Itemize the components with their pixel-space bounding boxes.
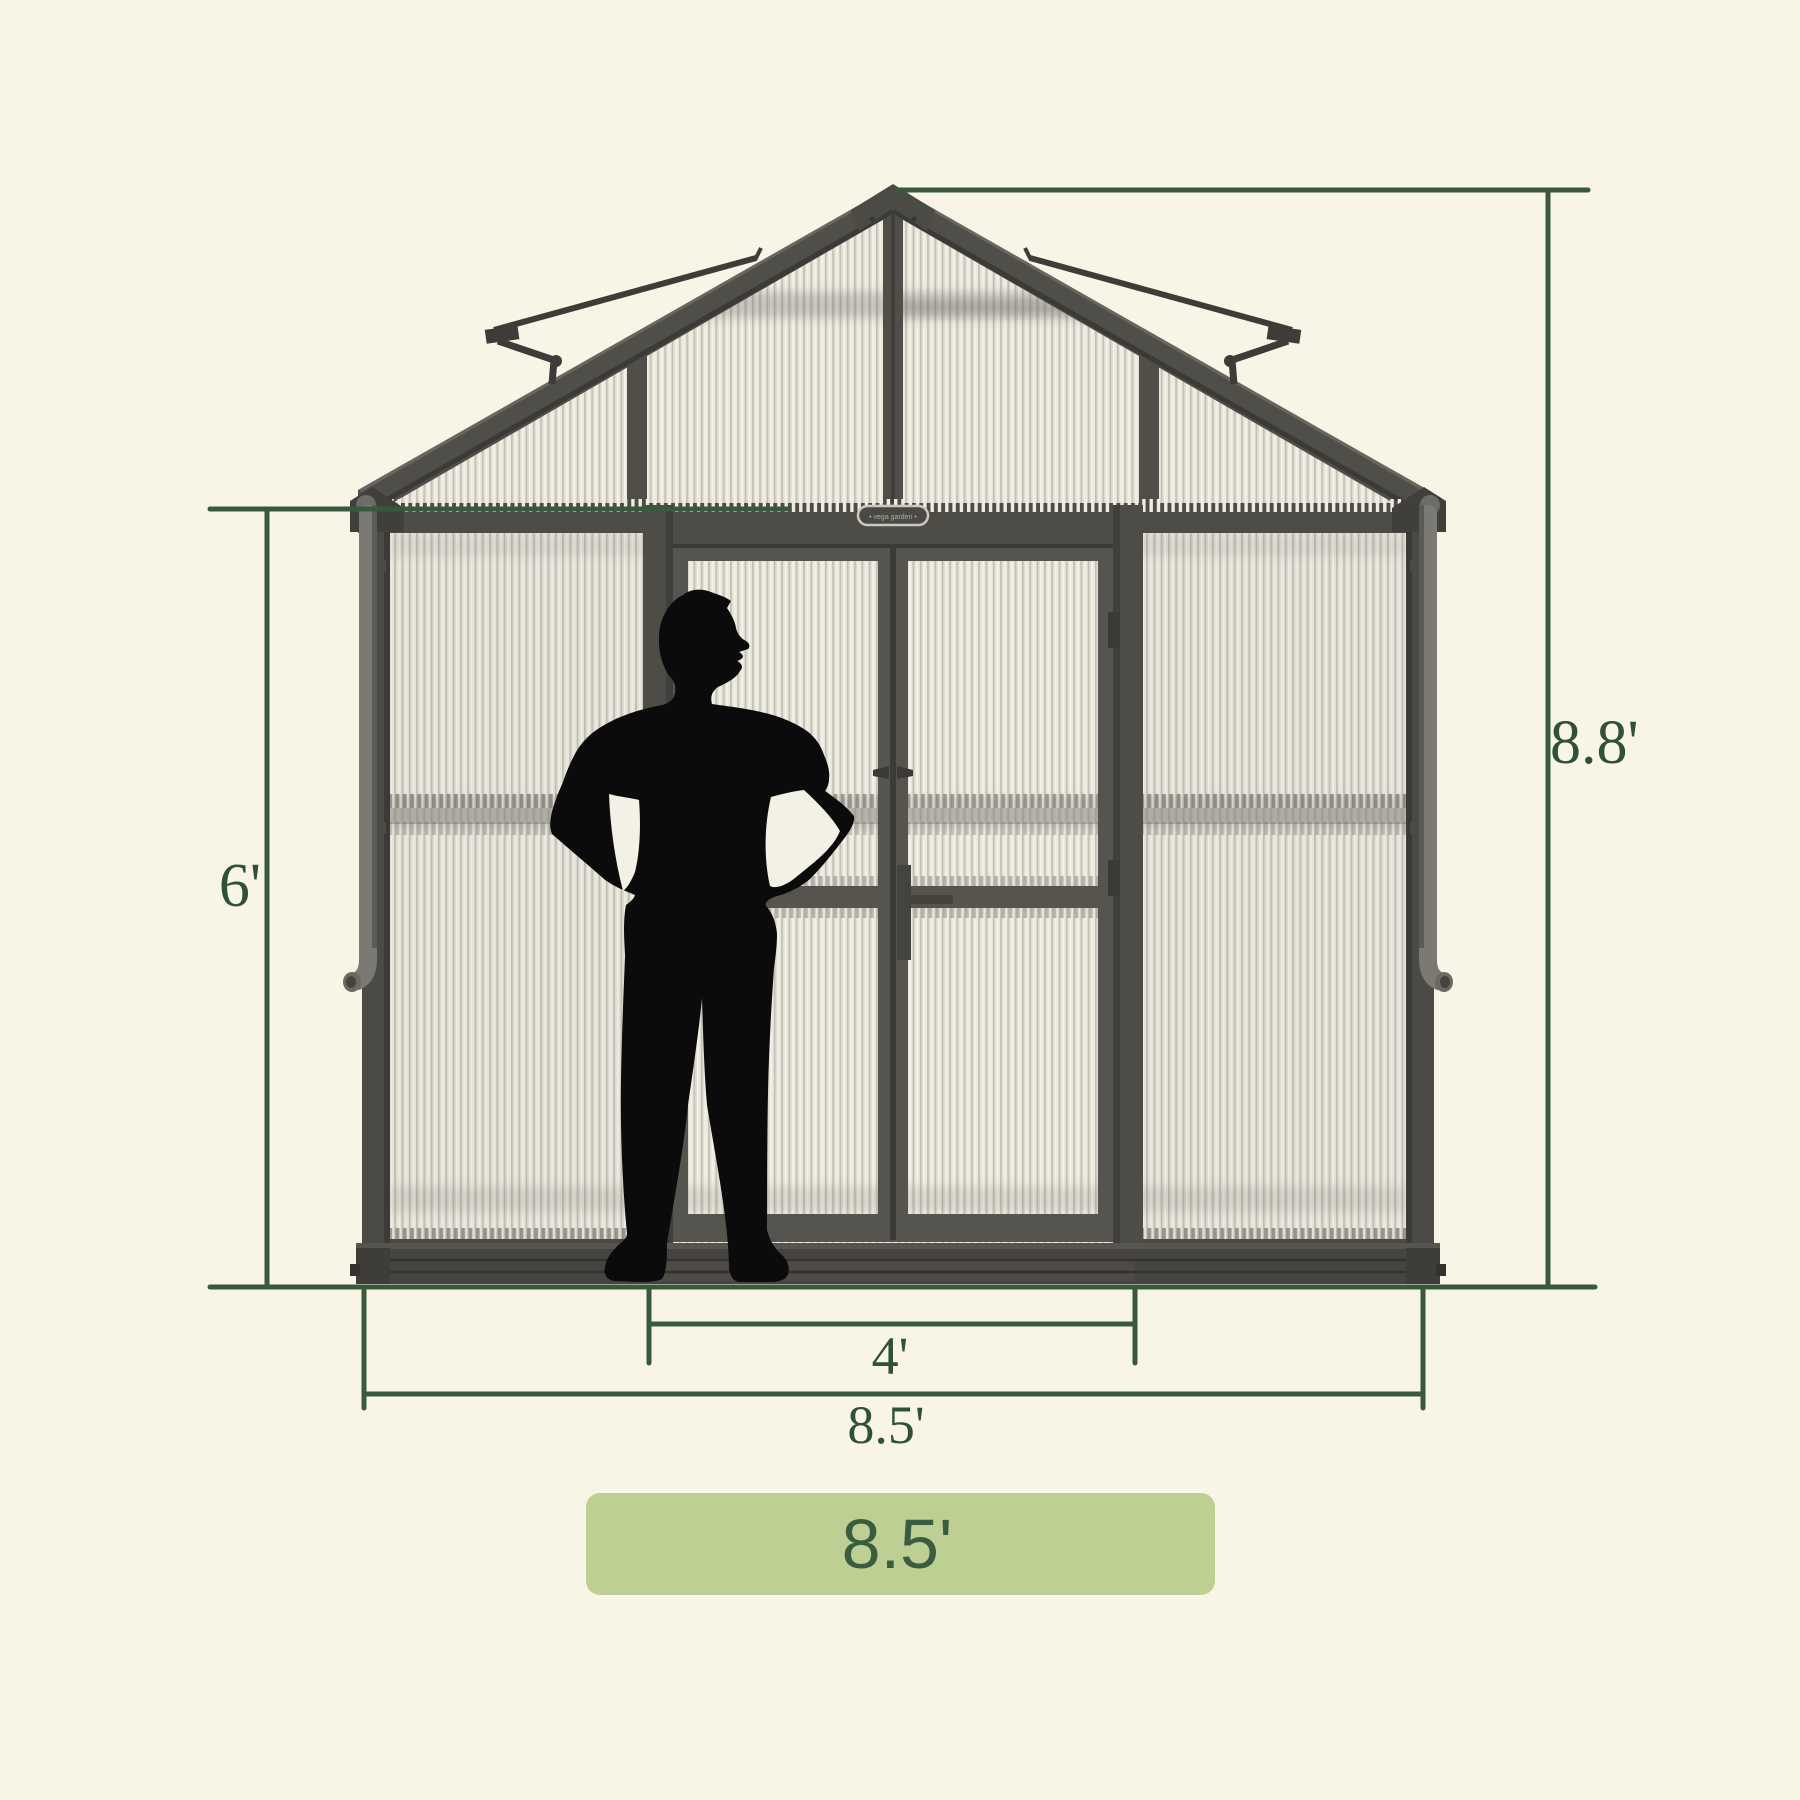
svg-text:6': 6' (219, 852, 261, 920)
svg-text:• vega garden •: • vega garden • (869, 514, 917, 521)
svg-text:8.5': 8.5' (847, 1395, 924, 1455)
svg-text:8.5': 8.5' (842, 1505, 953, 1583)
svg-text:8.8': 8.8' (1550, 709, 1639, 777)
svg-text:4': 4' (872, 1326, 909, 1386)
